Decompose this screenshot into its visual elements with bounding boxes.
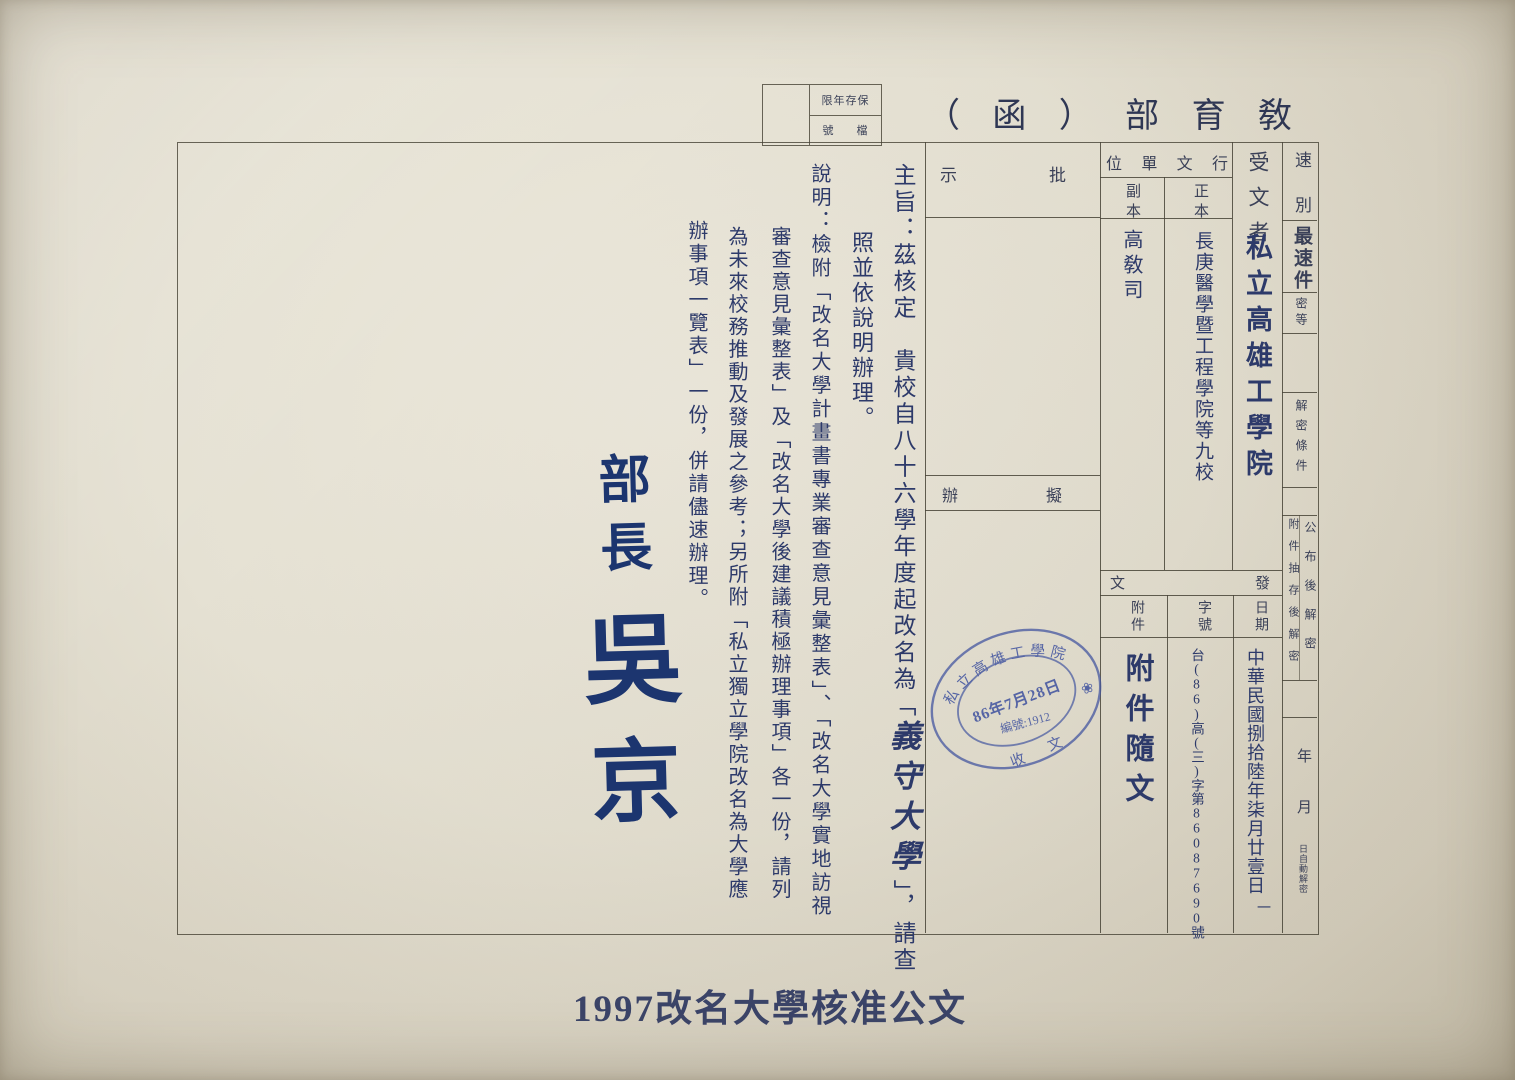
- table-rule: [925, 510, 1100, 511]
- table-rule: [925, 217, 1100, 218]
- remarks-label: 示 批: [940, 161, 1066, 186]
- photo-caption: 1997改名大學核准公文: [470, 978, 1070, 1032]
- table-rule: [1282, 717, 1317, 718]
- original-copy-label: 正本: [1190, 183, 1211, 223]
- addressee-label-char: 位: [1106, 150, 1122, 174]
- auto-declass-month: 月: [1295, 799, 1311, 814]
- attachment-label: 附件: [1126, 600, 1146, 634]
- table-rule: [1100, 218, 1232, 219]
- table-rule: [1282, 333, 1317, 334]
- security-class-label: 密等: [1293, 297, 1310, 329]
- declassify-option-publication: 公布後解密: [1302, 521, 1319, 666]
- subject-column-1: 主旨：茲核定 貴校自八十六學年度起改名為「義守大學」，請查: [880, 163, 924, 963]
- remarks-label-char: 示: [940, 161, 957, 186]
- remarks-label-char: 批: [1049, 161, 1066, 186]
- dispatch-label-char: 發: [1255, 572, 1270, 593]
- document-title: （ 函 ） 部 育 敎: [926, 88, 1292, 137]
- table-rule: [925, 475, 1100, 476]
- date-label: 日期: [1250, 600, 1270, 634]
- minister-name-char: 吳: [567, 607, 678, 708]
- table-rule: [1233, 595, 1234, 933]
- page-mark: 一: [1252, 900, 1272, 914]
- recipient-value: 私立高雄工學院: [1238, 233, 1277, 485]
- table-rule: [1100, 570, 1282, 571]
- table-rule: [1282, 515, 1317, 516]
- title-char: 函: [992, 88, 1026, 137]
- addressee-label-char: 文: [1177, 150, 1193, 174]
- file-number-label: 號 檔: [810, 116, 881, 146]
- addressee-group-label: 位 單 文 行: [1106, 150, 1228, 174]
- table-rule: [1282, 487, 1317, 488]
- title-char: （: [926, 88, 960, 137]
- carbon-copy-label: 副本: [1122, 183, 1143, 223]
- date-value: 中華民國捌拾陸年柒月廿壹日: [1242, 648, 1268, 895]
- reference-number-label: 字號: [1193, 600, 1213, 634]
- title-char: ）: [1059, 88, 1093, 137]
- file-no-char: 號: [823, 122, 835, 138]
- minister-title: 部長: [589, 451, 650, 588]
- table-rule: [1164, 177, 1165, 570]
- table-rule: [1282, 392, 1317, 393]
- draft-label: 辦 擬: [942, 482, 1062, 506]
- file-no-char: 檔: [857, 122, 869, 138]
- auto-declassify-date: 年月日自動解密: [1293, 748, 1314, 894]
- table-rule: [1232, 142, 1233, 570]
- dispatch-label: 文 發: [1110, 572, 1270, 593]
- declassify-condition-label: 解密條件: [1293, 399, 1310, 479]
- stamp-flower-emblem-icon: ❀: [1079, 679, 1096, 698]
- title-char: 敎: [1258, 88, 1292, 137]
- retention-period-label: 限年存保: [810, 85, 881, 116]
- scanned-official-document: （ 函 ） 部 育 敎 限年存保 號 檔: [0, 0, 1515, 1080]
- speed-class-value: 最速件: [1288, 226, 1315, 292]
- table-rule: [1282, 292, 1317, 293]
- table-rule: [1282, 680, 1317, 681]
- table-rule: [1167, 595, 1168, 933]
- auto-declass-tail: 日自動解密: [1298, 844, 1308, 894]
- table-rule: [1100, 637, 1282, 638]
- minister-signature: 部長吳京: [552, 450, 693, 883]
- file-retention-box: 限年存保 號 檔: [762, 84, 882, 146]
- subject-column-2: 照並依說明辦理。: [840, 231, 882, 931]
- table-rule: [1100, 177, 1232, 178]
- auto-declass-year: 年: [1295, 748, 1311, 763]
- title-char: 部: [1125, 88, 1159, 137]
- explanation-column-3: 為未來校務推動及發展之參考；另所附「私立獨立學院改名為大學應: [716, 226, 756, 966]
- original-copy-value: 長庚醫學暨工程學院等九校: [1189, 231, 1216, 483]
- subject-new-school-name: 義守大學: [885, 720, 920, 880]
- draft-label-char: 擬: [1046, 482, 1062, 506]
- draft-label-char: 辦: [942, 482, 958, 506]
- table-rule: [1100, 142, 1101, 933]
- file-box-empty-cell: [763, 85, 810, 145]
- minister-name-char: 京: [576, 733, 677, 826]
- table-rule: [1282, 142, 1283, 933]
- addressee-label-char: 單: [1141, 150, 1157, 174]
- reference-number-value: 台(86)高(三)字第86087690號: [1186, 648, 1206, 939]
- stamp-document-char: 文: [1045, 734, 1065, 755]
- subject-text: 」，請查: [890, 880, 915, 975]
- dispatch-label-char: 文: [1110, 572, 1125, 593]
- explanation-column-1: 說明：檢附「改名大學計畫書專業審查意見彙整表」、「改名大學實地訪視: [799, 163, 839, 963]
- table-rule: [1100, 595, 1282, 596]
- addressee-label-char: 行: [1212, 150, 1228, 174]
- carbon-copy-value: 高敎司: [1117, 229, 1146, 304]
- subject-text: 主旨：茲核定 貴校自八十六學年度起改名為「: [890, 163, 915, 720]
- table-rule: [925, 142, 926, 933]
- explanation-column-2: 審查意見彙整表」及「改名大學後建議積極辦理事項」各一份，請列: [759, 226, 799, 966]
- declassify-option-attachment: 附件抽存後解密: [1285, 518, 1301, 672]
- title-char: 育: [1192, 88, 1226, 137]
